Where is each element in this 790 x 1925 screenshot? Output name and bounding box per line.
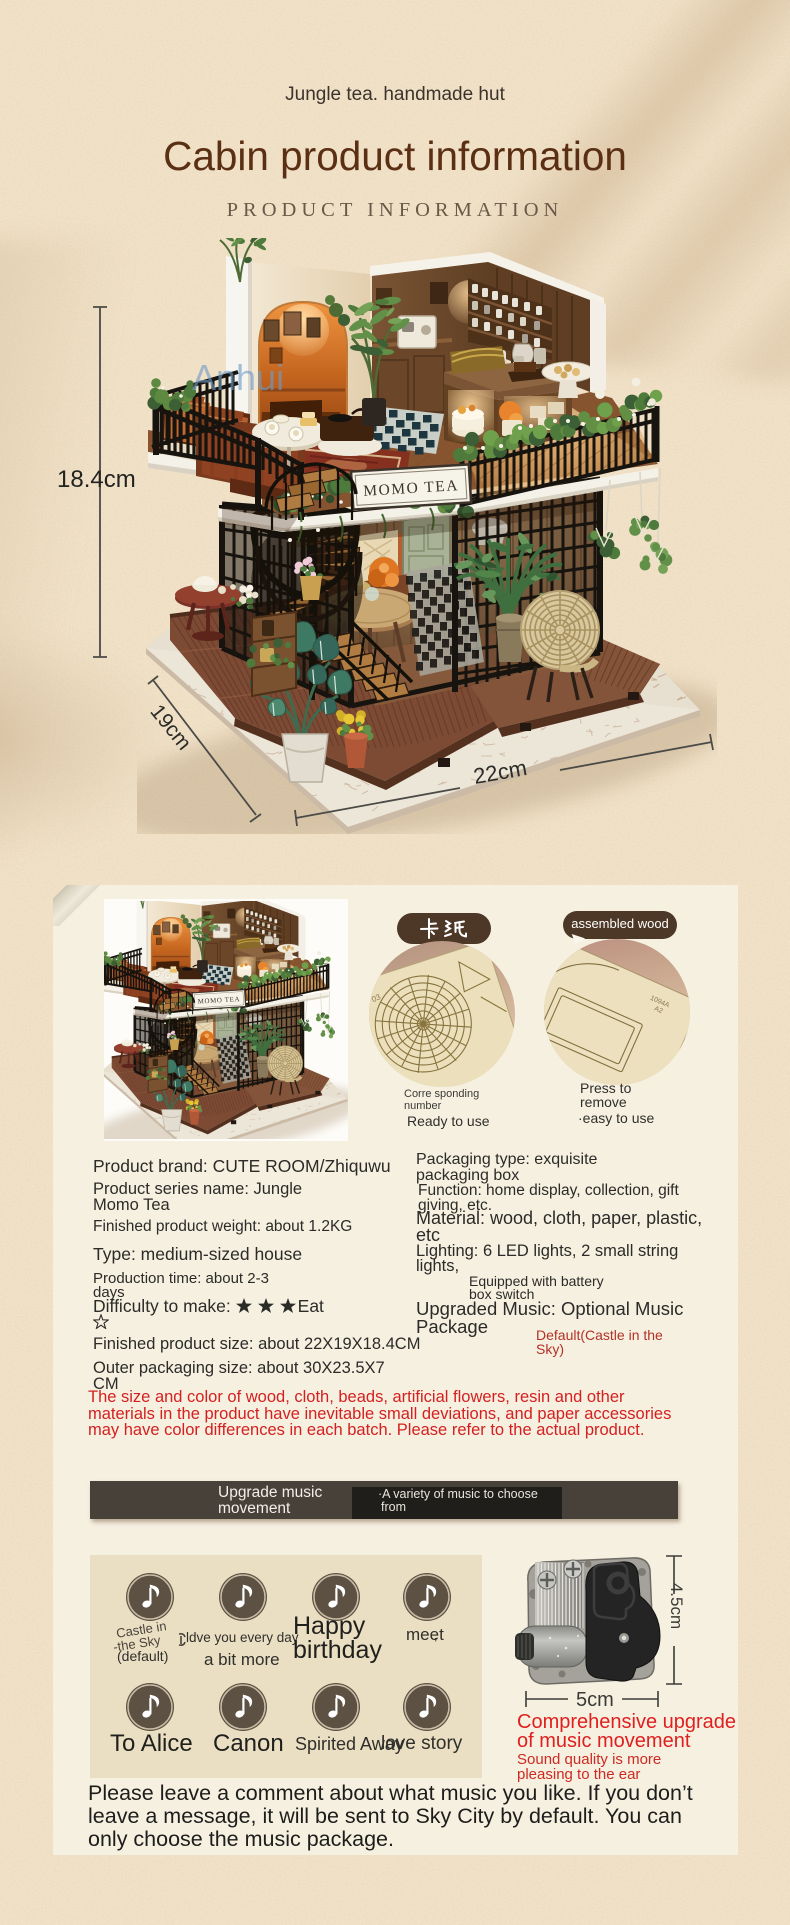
svg-text:18.4cm: 18.4cm [57, 466, 136, 493]
svg-text:Anhui: Anhui [192, 357, 284, 398]
